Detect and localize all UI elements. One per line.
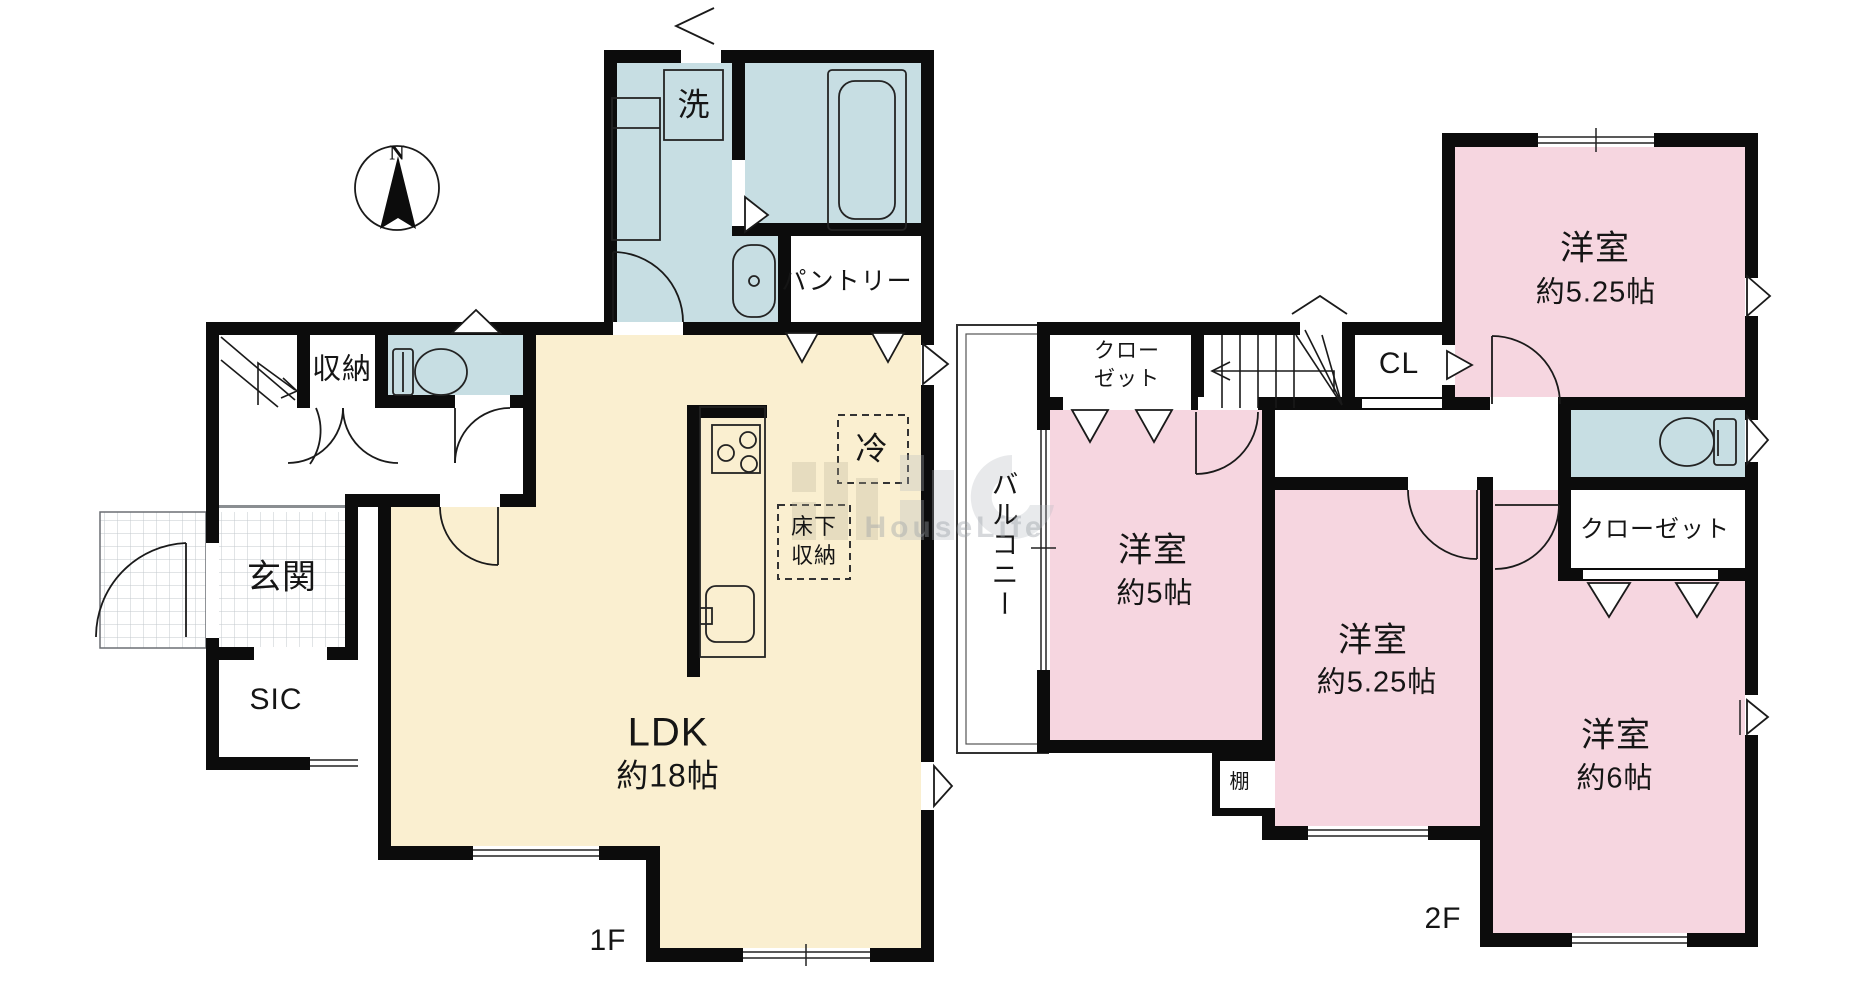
floor-label-1f: 1F — [589, 925, 626, 957]
room-label-cl: CL — [1379, 348, 1419, 380]
entrance-step — [219, 505, 345, 508]
label-shelf: 棚 — [1230, 772, 1251, 794]
room-size-bedroom-w: 約5帖 — [1116, 578, 1193, 609]
room-label-sic: SIC — [249, 684, 302, 716]
room-label-entrance: 玄関 — [247, 560, 317, 597]
room-label-pantry: パントリー — [781, 269, 912, 296]
room-label-closet-east: クローゼット — [1580, 517, 1730, 543]
room-label-storage: 収納 — [312, 354, 372, 385]
room-label-bedroom-c: 洋室 — [1338, 623, 1408, 660]
floor-plan: N 洗 パントリー 収納 玄関 SIC LDK 約18帖 冷 床下 収納 1F … — [0, 0, 1853, 994]
watermark-text: HouseLife — [864, 511, 1045, 545]
room-label-bedroom-w: 洋室 — [1118, 533, 1188, 570]
label-underfloor-1: 床下 — [791, 515, 837, 539]
bedroom-se-floor-b — [1493, 581, 1745, 933]
floor-1f-geometry — [96, 8, 952, 966]
room-label-laundry: 洗 — [677, 88, 710, 123]
room-size-bedroom-ne: 約5.25帖 — [1536, 277, 1656, 308]
room-size-ldk: 約18帖 — [616, 759, 720, 794]
label-underfloor-2: 収納 — [791, 544, 837, 568]
room-label-bedroom-ne: 洋室 — [1560, 231, 1630, 268]
room-size-bedroom-se: 約6帖 — [1576, 763, 1653, 794]
room-size-bedroom-c: 約5.25帖 — [1317, 667, 1437, 698]
bathroom-floor — [738, 56, 928, 230]
compass-north-label: N — [389, 141, 404, 166]
washroom-floor — [610, 56, 738, 326]
room-label-ldk: LDK — [628, 711, 709, 754]
bedroom-ne-floor — [1455, 147, 1745, 397]
floor-label-2f: 2F — [1424, 903, 1461, 935]
toilet-1f-floor — [385, 330, 527, 400]
stairs-2f — [1212, 330, 1342, 408]
room-label-closet-top-2: ゼット — [1094, 369, 1160, 392]
room-label-bedroom-se: 洋室 — [1581, 718, 1651, 755]
room-label-balcony: バルコニー — [987, 470, 1016, 620]
floor-plan-drawing — [0, 0, 1853, 994]
room-label-closet-top-1: クロー — [1094, 341, 1160, 364]
label-refrigerator: 冷 — [855, 432, 888, 467]
bedroom-w-floor — [1050, 408, 1262, 740]
stairs-1f — [221, 337, 297, 407]
